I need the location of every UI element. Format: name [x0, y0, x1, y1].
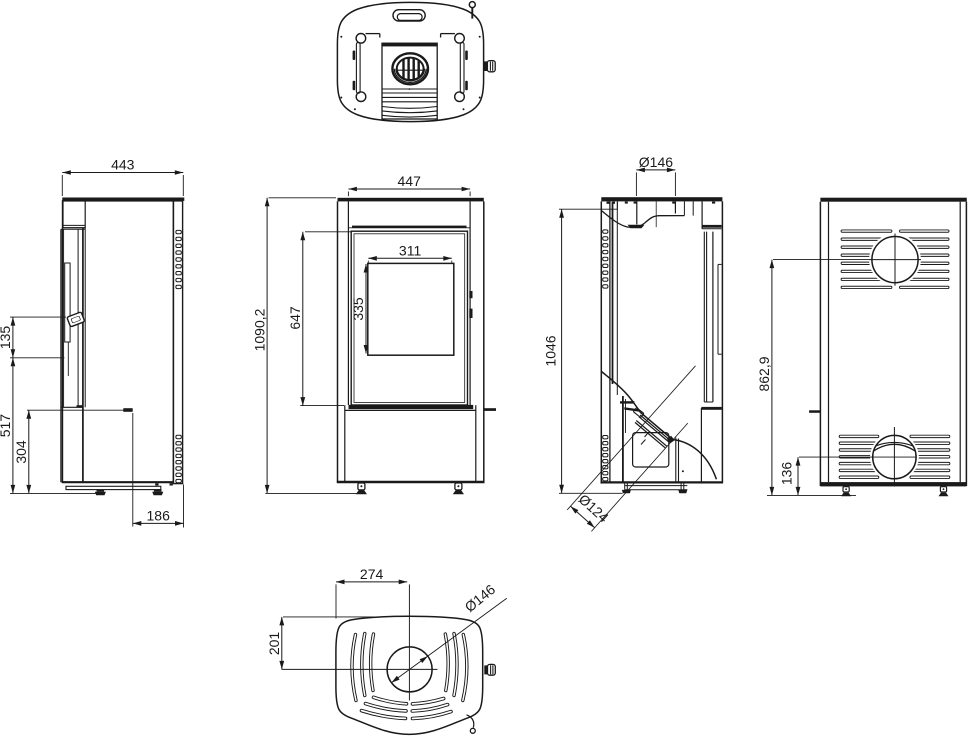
svg-text:304: 304: [13, 440, 29, 464]
svg-text:335: 335: [350, 297, 366, 321]
svg-text:136: 136: [779, 462, 795, 486]
svg-text:443: 443: [111, 157, 135, 173]
svg-text:311: 311: [399, 243, 422, 259]
svg-text:1046: 1046: [543, 335, 559, 366]
svg-text:Ø146: Ø146: [639, 154, 673, 170]
svg-text:135: 135: [0, 326, 13, 350]
svg-text:647: 647: [287, 306, 303, 330]
svg-text:274: 274: [360, 566, 384, 582]
svg-text:862,9: 862,9: [756, 356, 772, 391]
svg-text:1090,2: 1090,2: [251, 308, 267, 351]
svg-text:186: 186: [147, 508, 171, 524]
svg-text:447: 447: [398, 173, 422, 189]
svg-text:201: 201: [266, 632, 282, 656]
svg-text:517: 517: [0, 414, 13, 438]
